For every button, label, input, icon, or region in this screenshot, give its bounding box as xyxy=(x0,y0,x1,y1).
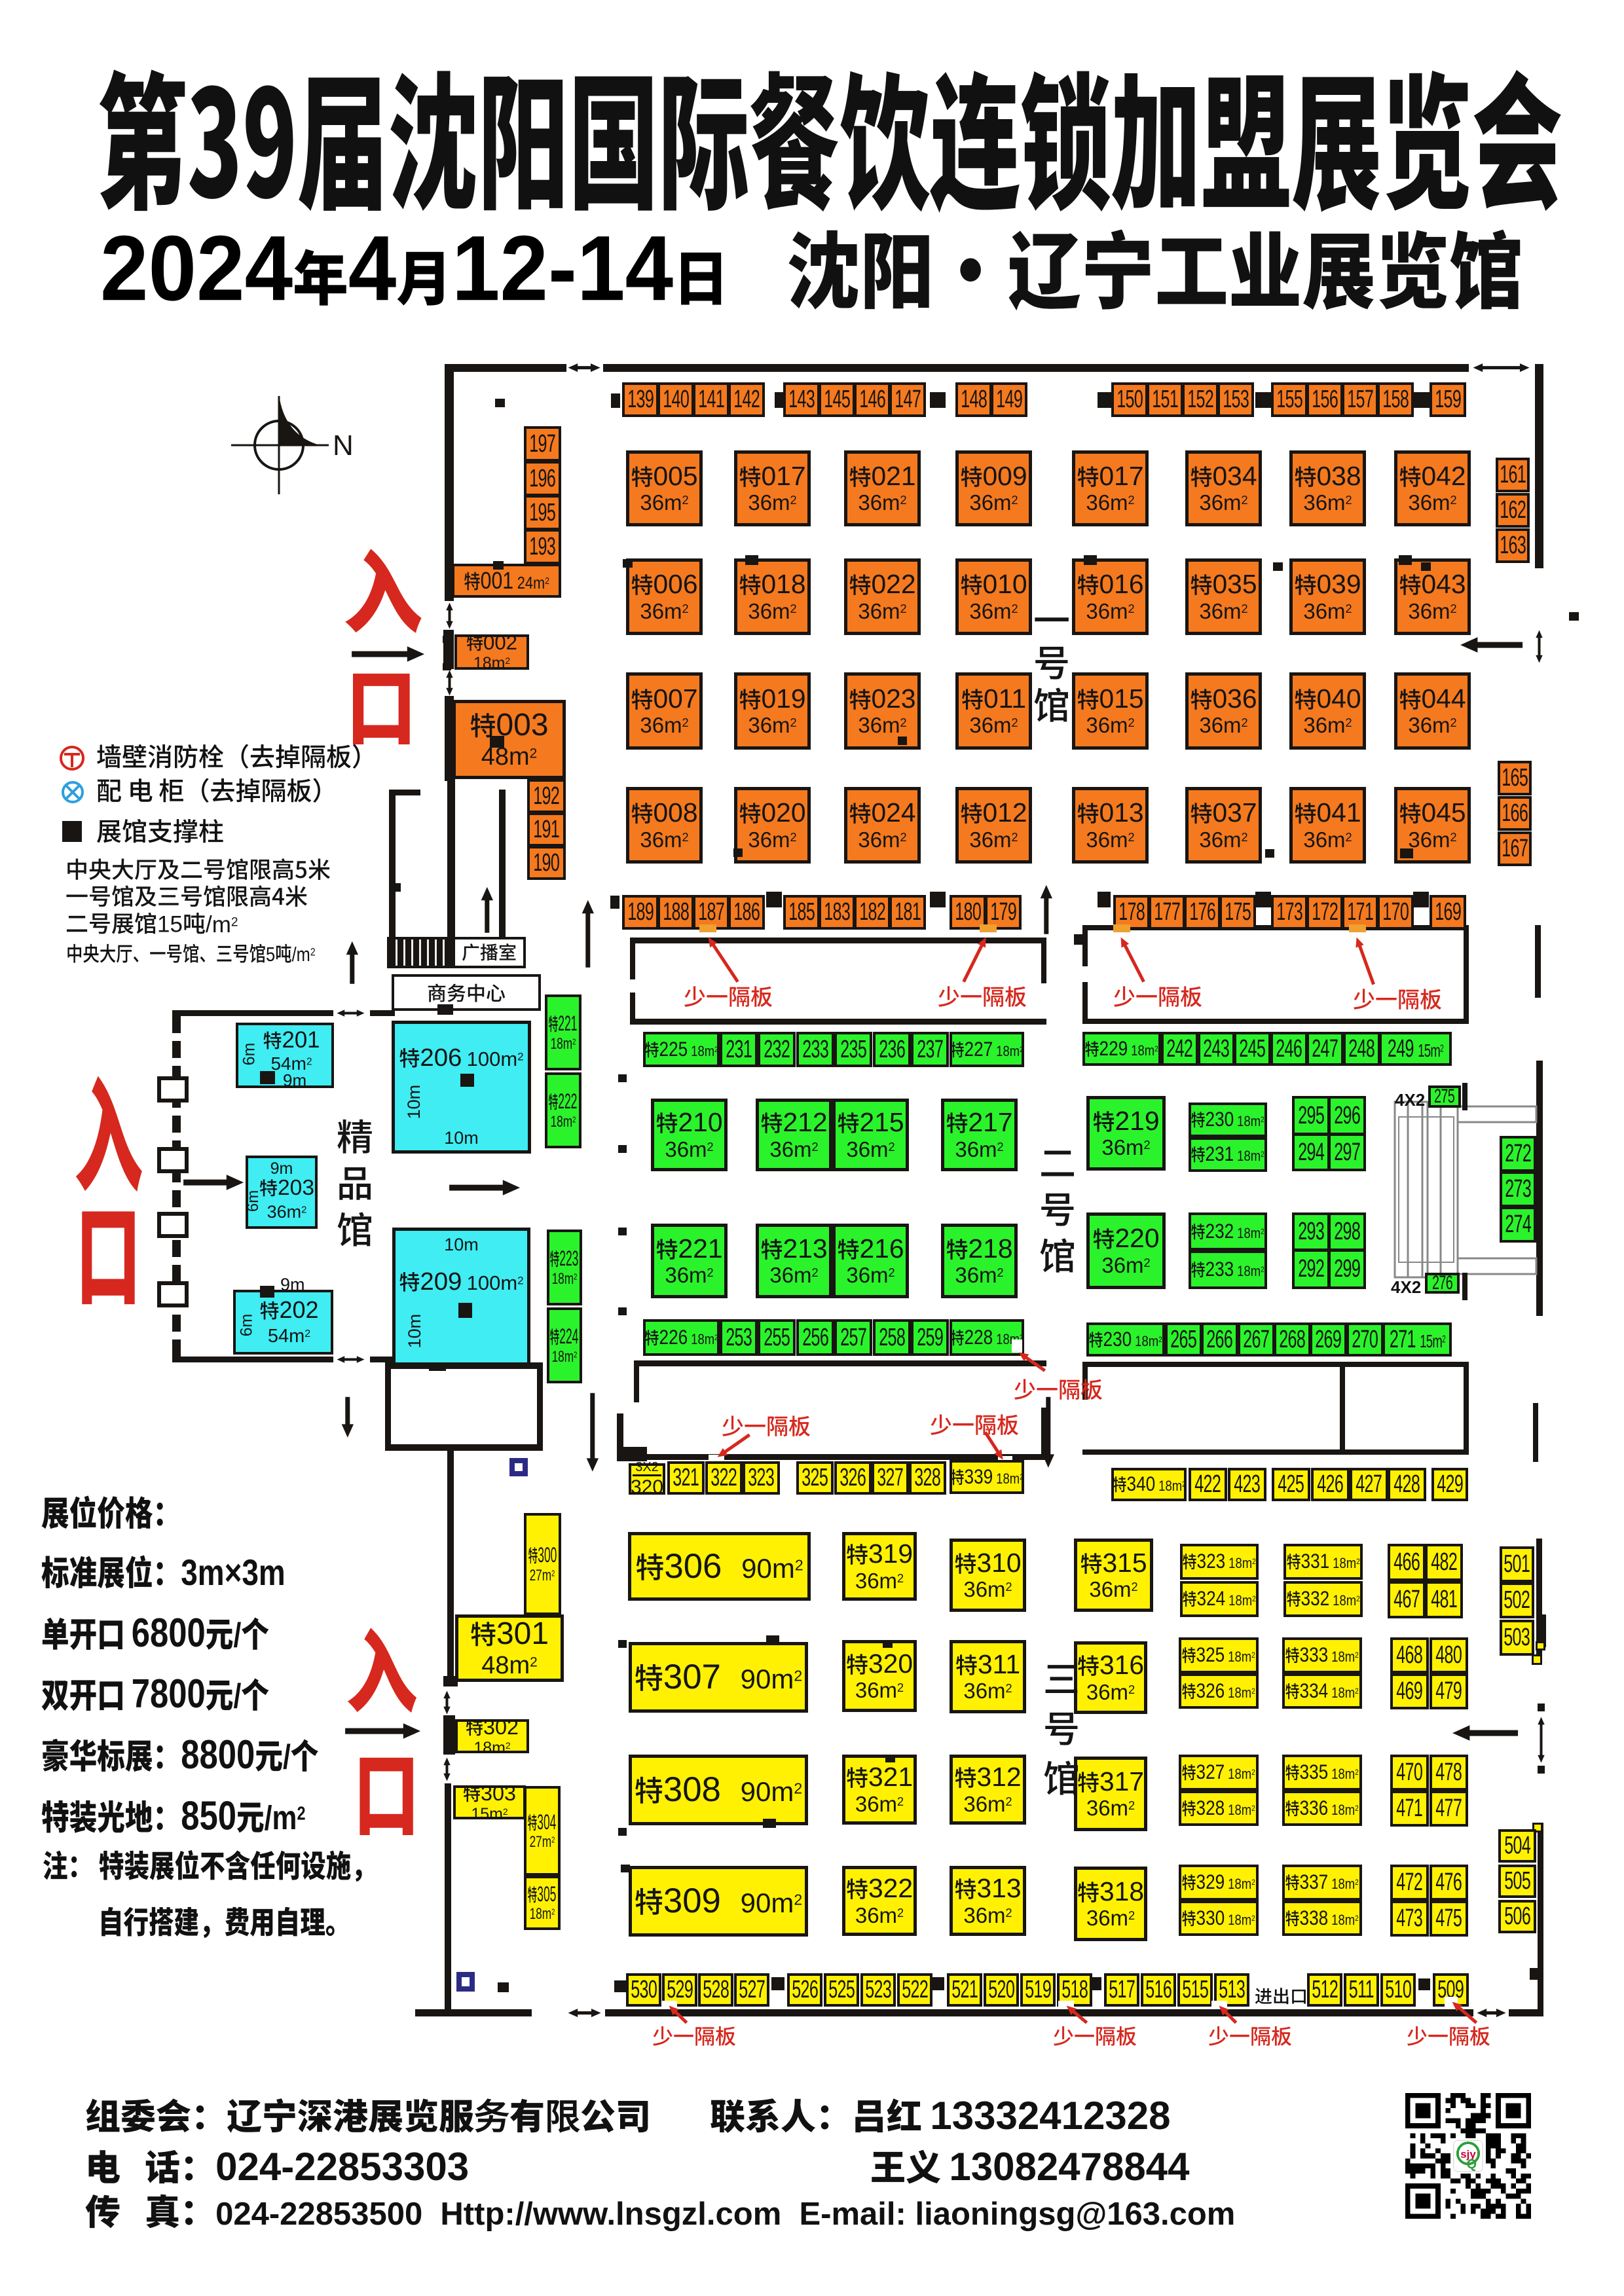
svg-text:Q: Q xyxy=(1467,2157,1477,2172)
svg-text:N: N xyxy=(333,429,354,462)
